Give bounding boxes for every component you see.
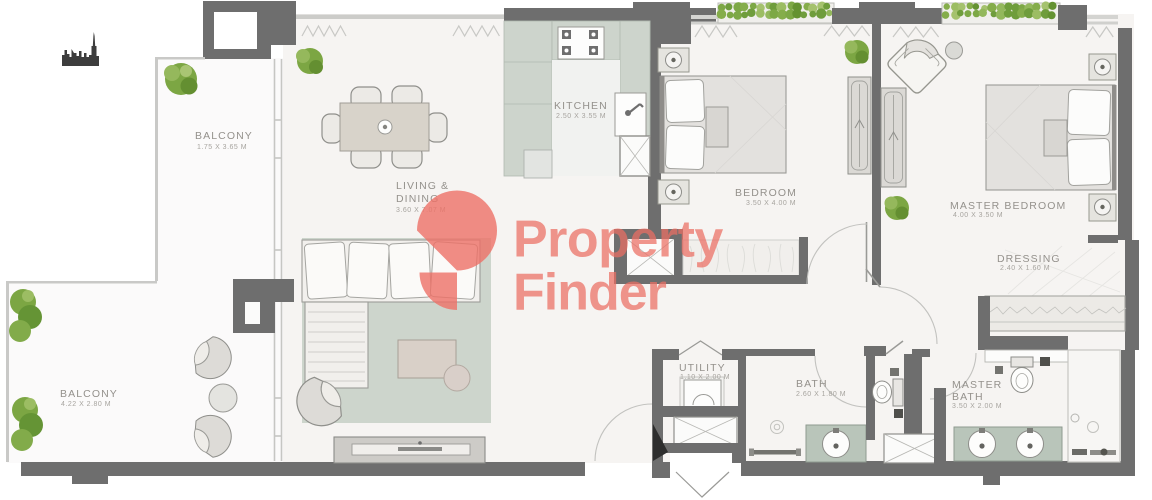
svg-text:2.60 X 1.80 M: 2.60 X 1.80 M (796, 391, 846, 398)
svg-text:4.00 X 3.50 M: 4.00 X 3.50 M (953, 212, 1003, 219)
svg-text:3.50 X 2.00 M: 3.50 X 2.00 M (952, 403, 1002, 410)
svg-text:4.22 X 2.80 M: 4.22 X 2.80 M (61, 401, 111, 408)
svg-text:3.50 X 4.00 M: 3.50 X 4.00 M (746, 200, 796, 207)
svg-text:KITCHEN: KITCHEN (554, 100, 608, 112)
svg-text:BALCONY: BALCONY (195, 130, 253, 142)
svg-text:Property: Property (513, 211, 723, 269)
svg-text:1.10 X 2.00 M: 1.10 X 2.00 M (680, 374, 730, 381)
svg-text:2.50 X 3.55 M: 2.50 X 3.55 M (556, 113, 606, 120)
svg-text:BATH: BATH (796, 378, 828, 390)
svg-text:BALCONY: BALCONY (60, 388, 118, 400)
svg-text:DRESSING: DRESSING (997, 253, 1061, 265)
svg-text:BATH: BATH (952, 391, 984, 403)
svg-text:1.75 X 3.65 M: 1.75 X 3.65 M (197, 144, 247, 151)
svg-text:UTILITY: UTILITY (679, 362, 726, 374)
svg-text:BEDROOM: BEDROOM (735, 187, 797, 199)
svg-text:2.40 X 1.60 M: 2.40 X 1.60 M (1000, 265, 1050, 272)
svg-text:MASTER: MASTER (952, 379, 1002, 391)
svg-text:LIVING &: LIVING & (396, 180, 449, 192)
svg-text:MASTER BEDROOM: MASTER BEDROOM (950, 200, 1066, 212)
svg-text:Finder: Finder (513, 264, 667, 322)
